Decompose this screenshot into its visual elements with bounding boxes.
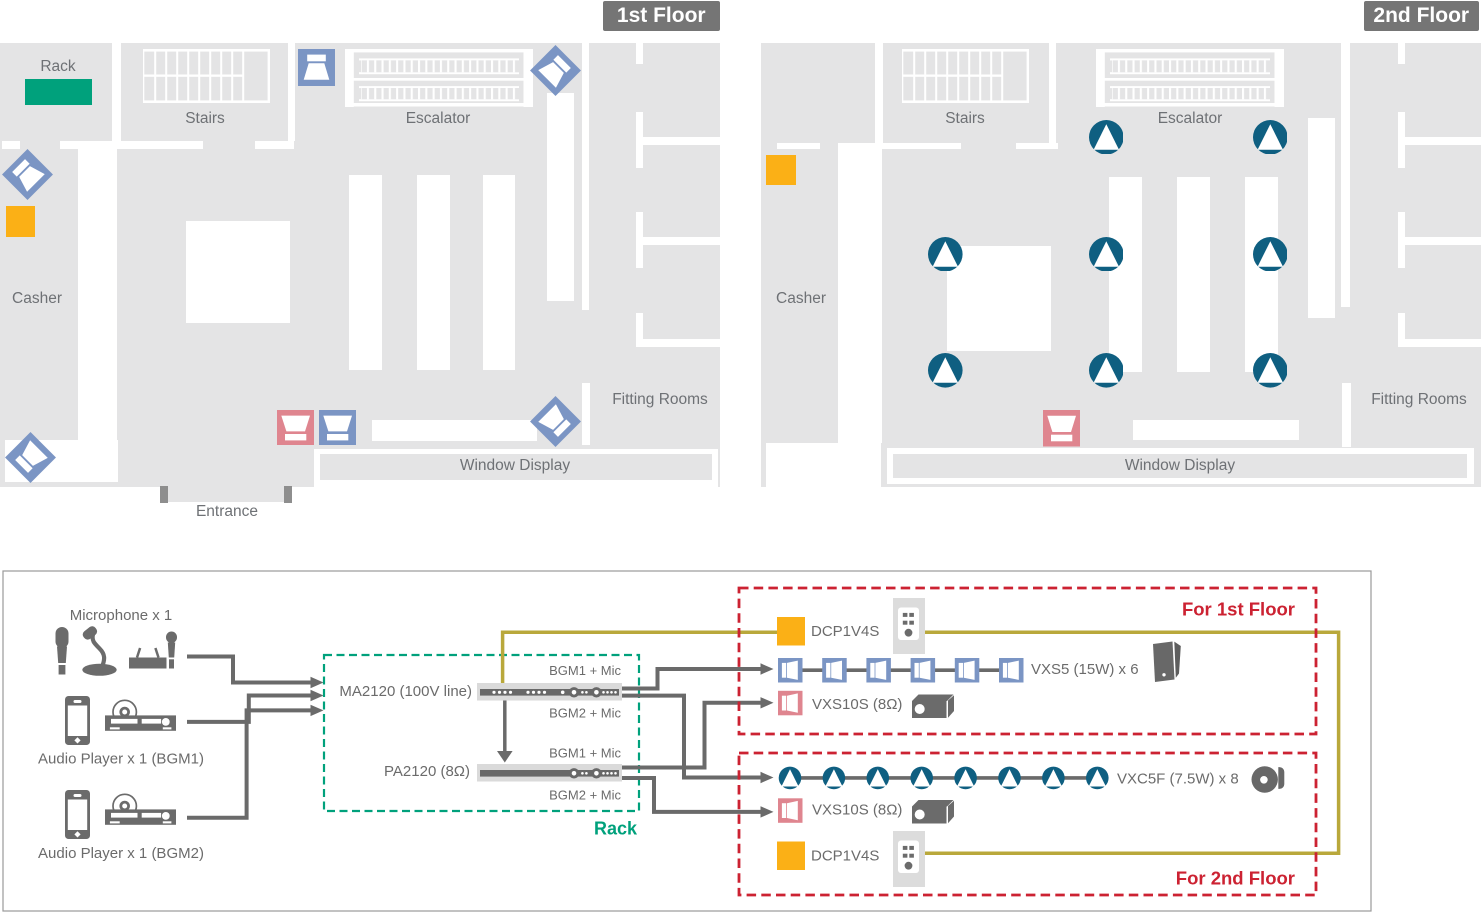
svg-text:DCP1V4S: DCP1V4S [811, 623, 879, 640]
svg-text:VXS10S (8Ω): VXS10S (8Ω) [812, 802, 902, 819]
svg-text:For 2nd Floor: For 2nd Floor [1176, 868, 1295, 889]
svg-text:BGM2 + Mic: BGM2 + Mic [549, 706, 621, 721]
svg-text:Audio Player x 1 (BGM1): Audio Player x 1 (BGM1) [38, 751, 204, 768]
svg-text:Microphone x 1: Microphone x 1 [70, 607, 173, 624]
svg-text:DCP1V4S: DCP1V4S [811, 848, 879, 865]
svg-text:BGM1 + Mic: BGM1 + Mic [549, 663, 621, 678]
svg-text:MA2120 (100V line): MA2120 (100V line) [339, 683, 472, 700]
svg-text:PA2120 (8Ω): PA2120 (8Ω) [384, 763, 470, 780]
svg-text:VXS10S (8Ω): VXS10S (8Ω) [812, 696, 902, 713]
svg-text:Rack: Rack [594, 819, 638, 839]
svg-text:VXS5 (15W) x 6: VXS5 (15W) x 6 [1031, 661, 1139, 678]
svg-text:BGM2 + Mic: BGM2 + Mic [549, 788, 621, 803]
svg-text:Audio Player x 1 (BGM2): Audio Player x 1 (BGM2) [38, 845, 204, 862]
svg-text:BGM1 + Mic: BGM1 + Mic [549, 746, 621, 761]
svg-text:VXC5F (7.5W) x 8: VXC5F (7.5W) x 8 [1117, 771, 1239, 788]
svg-text:For 1st Floor: For 1st Floor [1182, 599, 1295, 620]
